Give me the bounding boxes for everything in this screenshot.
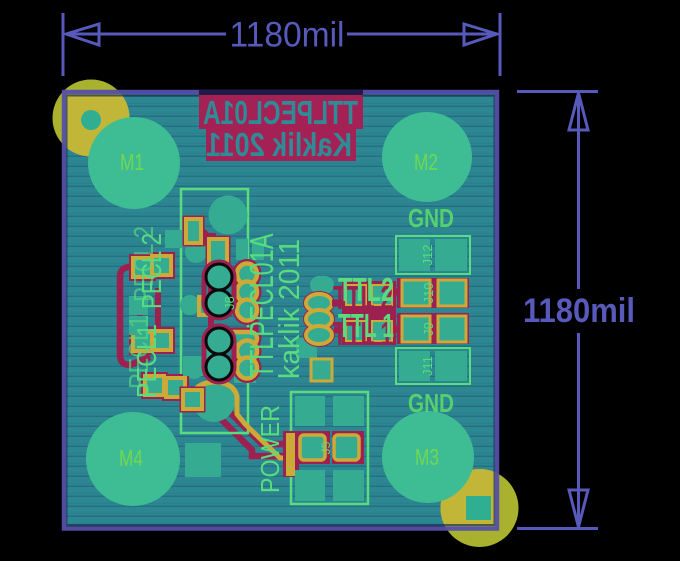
- svg-text:TTL 1: TTL 1: [338, 307, 394, 344]
- svg-text:M1: M1: [120, 149, 144, 175]
- svg-text:J5: J5: [319, 441, 333, 454]
- svg-text:TTL2: TTL2: [338, 271, 394, 308]
- svg-text:GND: GND: [408, 203, 454, 233]
- svg-text:PECL1: PECL1: [131, 324, 162, 398]
- svg-text:1180mil: 1180mil: [230, 16, 345, 55]
- svg-text:kaklik 2011: kaklik 2011: [274, 239, 306, 379]
- svg-text:PECL 2: PECL 2: [136, 233, 167, 309]
- svg-text:1180mil: 1180mil: [523, 292, 635, 330]
- svg-text:J8: J8: [222, 296, 237, 310]
- svg-text:J11: J11: [420, 356, 435, 376]
- svg-text:M4: M4: [119, 445, 143, 471]
- svg-text:J12: J12: [420, 245, 435, 266]
- svg-text:M2: M2: [414, 149, 438, 175]
- svg-text:J10: J10: [421, 283, 436, 304]
- svg-text:J9: J9: [421, 322, 436, 336]
- svg-text:GND: GND: [408, 388, 454, 418]
- svg-text:M3: M3: [415, 444, 439, 470]
- svg-text:Kaklik 2011: Kaklik 2011: [206, 126, 352, 163]
- svg-text:POWER: POWER: [255, 405, 285, 493]
